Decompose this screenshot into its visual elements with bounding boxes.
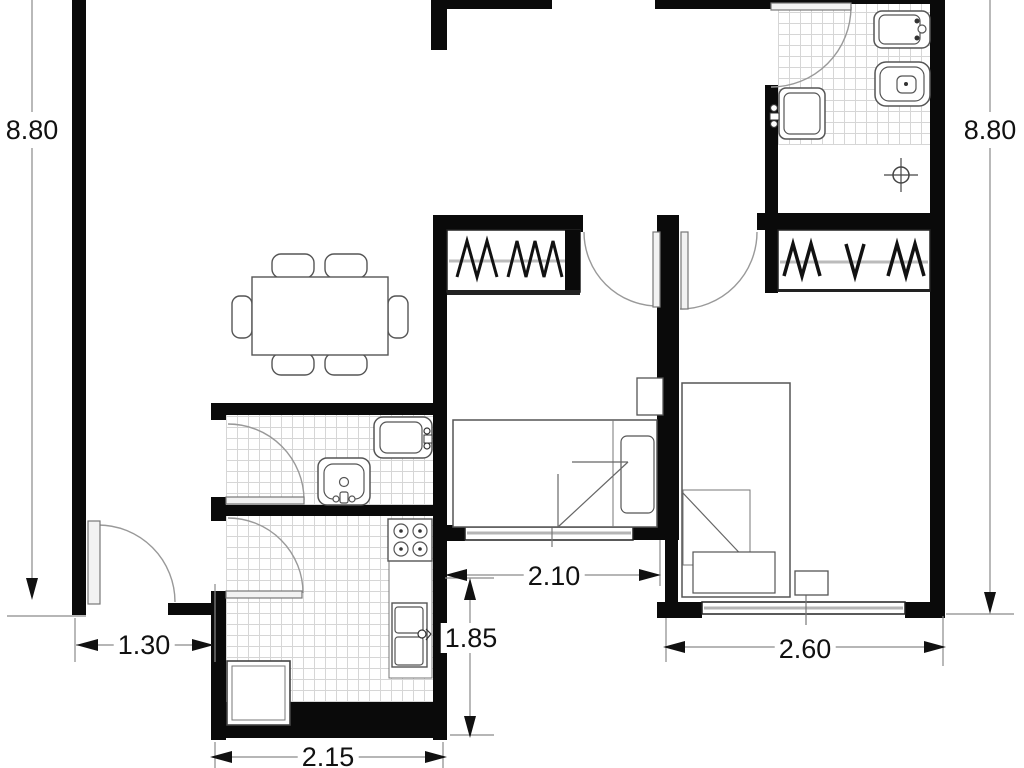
dining-chair bbox=[232, 296, 252, 338]
arrow-down bbox=[984, 592, 996, 614]
wardrobe-bottom-edge bbox=[778, 289, 930, 292]
arrow-up bbox=[464, 578, 476, 600]
dining-chair bbox=[325, 254, 367, 278]
wardrobe-bottom-edge bbox=[447, 290, 580, 295]
bathroom-fixtures bbox=[770, 11, 930, 192]
dimension-label-left-height: 8.80 bbox=[2, 115, 63, 145]
wardrobe-bedroom2 bbox=[778, 230, 930, 292]
wardrobe-bedroom1 bbox=[447, 230, 580, 295]
dimension-label-kitchen-depth: 1.85 bbox=[441, 623, 502, 653]
dimension-label-kitchen-width: 2.15 bbox=[298, 742, 359, 768]
wall-hall-right bbox=[757, 213, 930, 230]
wall-window2-stub-right bbox=[905, 602, 945, 618]
bedroom2-door-arc bbox=[680, 232, 757, 309]
toilet-icon bbox=[318, 458, 370, 505]
bathroom-door-arc bbox=[771, 7, 851, 87]
washbasin-icon bbox=[374, 417, 432, 458]
toilet-icon bbox=[874, 11, 930, 48]
arrow-left bbox=[76, 639, 98, 651]
kitchen-fixtures bbox=[227, 519, 432, 725]
dining-chair bbox=[272, 254, 314, 278]
dimension-label-bedroom2-width: 2.60 bbox=[775, 634, 836, 664]
wall-right bbox=[930, 0, 945, 618]
bedroom2-door-leaf bbox=[681, 232, 688, 309]
wall-top-b bbox=[655, 0, 765, 9]
toilette-door-leaf bbox=[226, 497, 304, 504]
bed-blanket bbox=[693, 552, 775, 593]
bathroom-door-leaf bbox=[771, 3, 851, 10]
bidet-icon bbox=[875, 62, 930, 106]
stove-icon bbox=[388, 519, 432, 561]
arrow-right bbox=[639, 569, 661, 581]
dimension-arrows bbox=[26, 569, 996, 763]
wall-top-stub bbox=[431, 0, 447, 50]
toilette-fixtures bbox=[318, 417, 432, 505]
entry-door-leaf bbox=[88, 521, 100, 604]
wall-window2-stub-left bbox=[657, 602, 702, 618]
dining-chair bbox=[272, 353, 314, 375]
dimension-label-entry-width: 1.30 bbox=[114, 630, 175, 660]
wall-left bbox=[72, 0, 86, 615]
wall-kitchen-right bbox=[433, 215, 447, 740]
dining-table bbox=[252, 277, 388, 355]
nightstand bbox=[637, 378, 663, 415]
wall-toilette-bottom bbox=[211, 505, 447, 516]
ceiling-light-icon bbox=[884, 158, 918, 192]
arrow-left bbox=[445, 569, 467, 581]
pillow bbox=[621, 436, 654, 513]
bedroom2-furniture bbox=[682, 383, 828, 597]
wall-top-a bbox=[447, 0, 552, 9]
dining-chair bbox=[325, 353, 367, 375]
arrow-down bbox=[26, 578, 38, 600]
bedroom1-door-arc bbox=[584, 232, 658, 306]
floor-plan: 8.80 8.80 1.30 2.15 1.85 2.10 2.60 bbox=[0, 0, 1024, 768]
wardrobe-end-panel bbox=[565, 230, 580, 295]
nightstand bbox=[795, 571, 828, 595]
dimension-label-right-height: 8.80 bbox=[960, 115, 1021, 145]
kitchen-sink-icon bbox=[392, 603, 431, 667]
dining-chair bbox=[388, 296, 408, 338]
arrow-left bbox=[210, 751, 232, 763]
dimension-label-bedroom1-width: 2.10 bbox=[524, 561, 585, 591]
wall-entry-bottom bbox=[168, 603, 216, 615]
kitchen-door-arc bbox=[228, 518, 303, 593]
fridge-icon bbox=[227, 661, 290, 725]
arrow-right bbox=[425, 751, 447, 763]
kitchen-door-leaf bbox=[226, 591, 302, 598]
bedroom1-door-leaf bbox=[653, 232, 660, 307]
toilette-door-arc bbox=[228, 424, 304, 500]
wall-middle-lower bbox=[665, 540, 678, 604]
bathroom-sink-icon bbox=[770, 88, 825, 139]
dining-set bbox=[232, 254, 408, 375]
entry-door-arc bbox=[98, 525, 175, 602]
wall-toilette-top bbox=[211, 403, 447, 415]
bedroom1-furniture bbox=[453, 378, 663, 527]
arrow-right bbox=[192, 639, 214, 651]
